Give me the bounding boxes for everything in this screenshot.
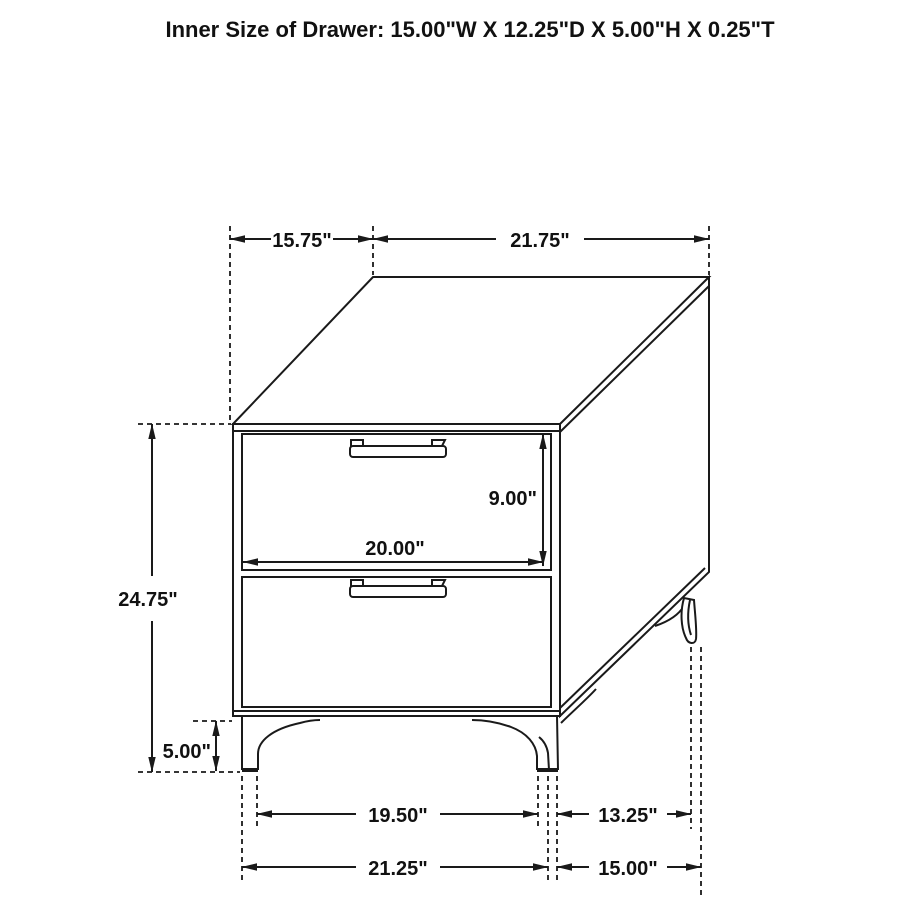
dim-side-overall-depth-label: 15.00" — [598, 858, 658, 880]
drawing-title: Inner Size of Drawer: 15.00"W X 12.25"D … — [165, 17, 775, 42]
nightstand-dimension-diagram: Inner Size of Drawer: 15.00"W X 12.25"D … — [0, 0, 900, 900]
handle-bar — [350, 446, 446, 457]
dim-side-leg-span-label: 13.25" — [598, 805, 658, 827]
dim-overall-height-label: 24.75" — [118, 589, 178, 611]
dim-leg-height-label: 5.00" — [163, 741, 211, 763]
dim-drawer-width-label: 20.00" — [365, 538, 425, 560]
technical-drawing-page: Inner Size of Drawer: 15.00"W X 12.25"D … — [0, 0, 900, 900]
dim-top-depth-label: 15.75" — [272, 230, 332, 252]
dim-drawer-height-label: 9.00" — [489, 488, 537, 510]
dim-front-overall-width-label: 21.25" — [368, 858, 428, 880]
dim-top-width-label: 21.75" — [510, 230, 570, 252]
dim-front-leg-span-label: 19.50" — [368, 805, 428, 827]
